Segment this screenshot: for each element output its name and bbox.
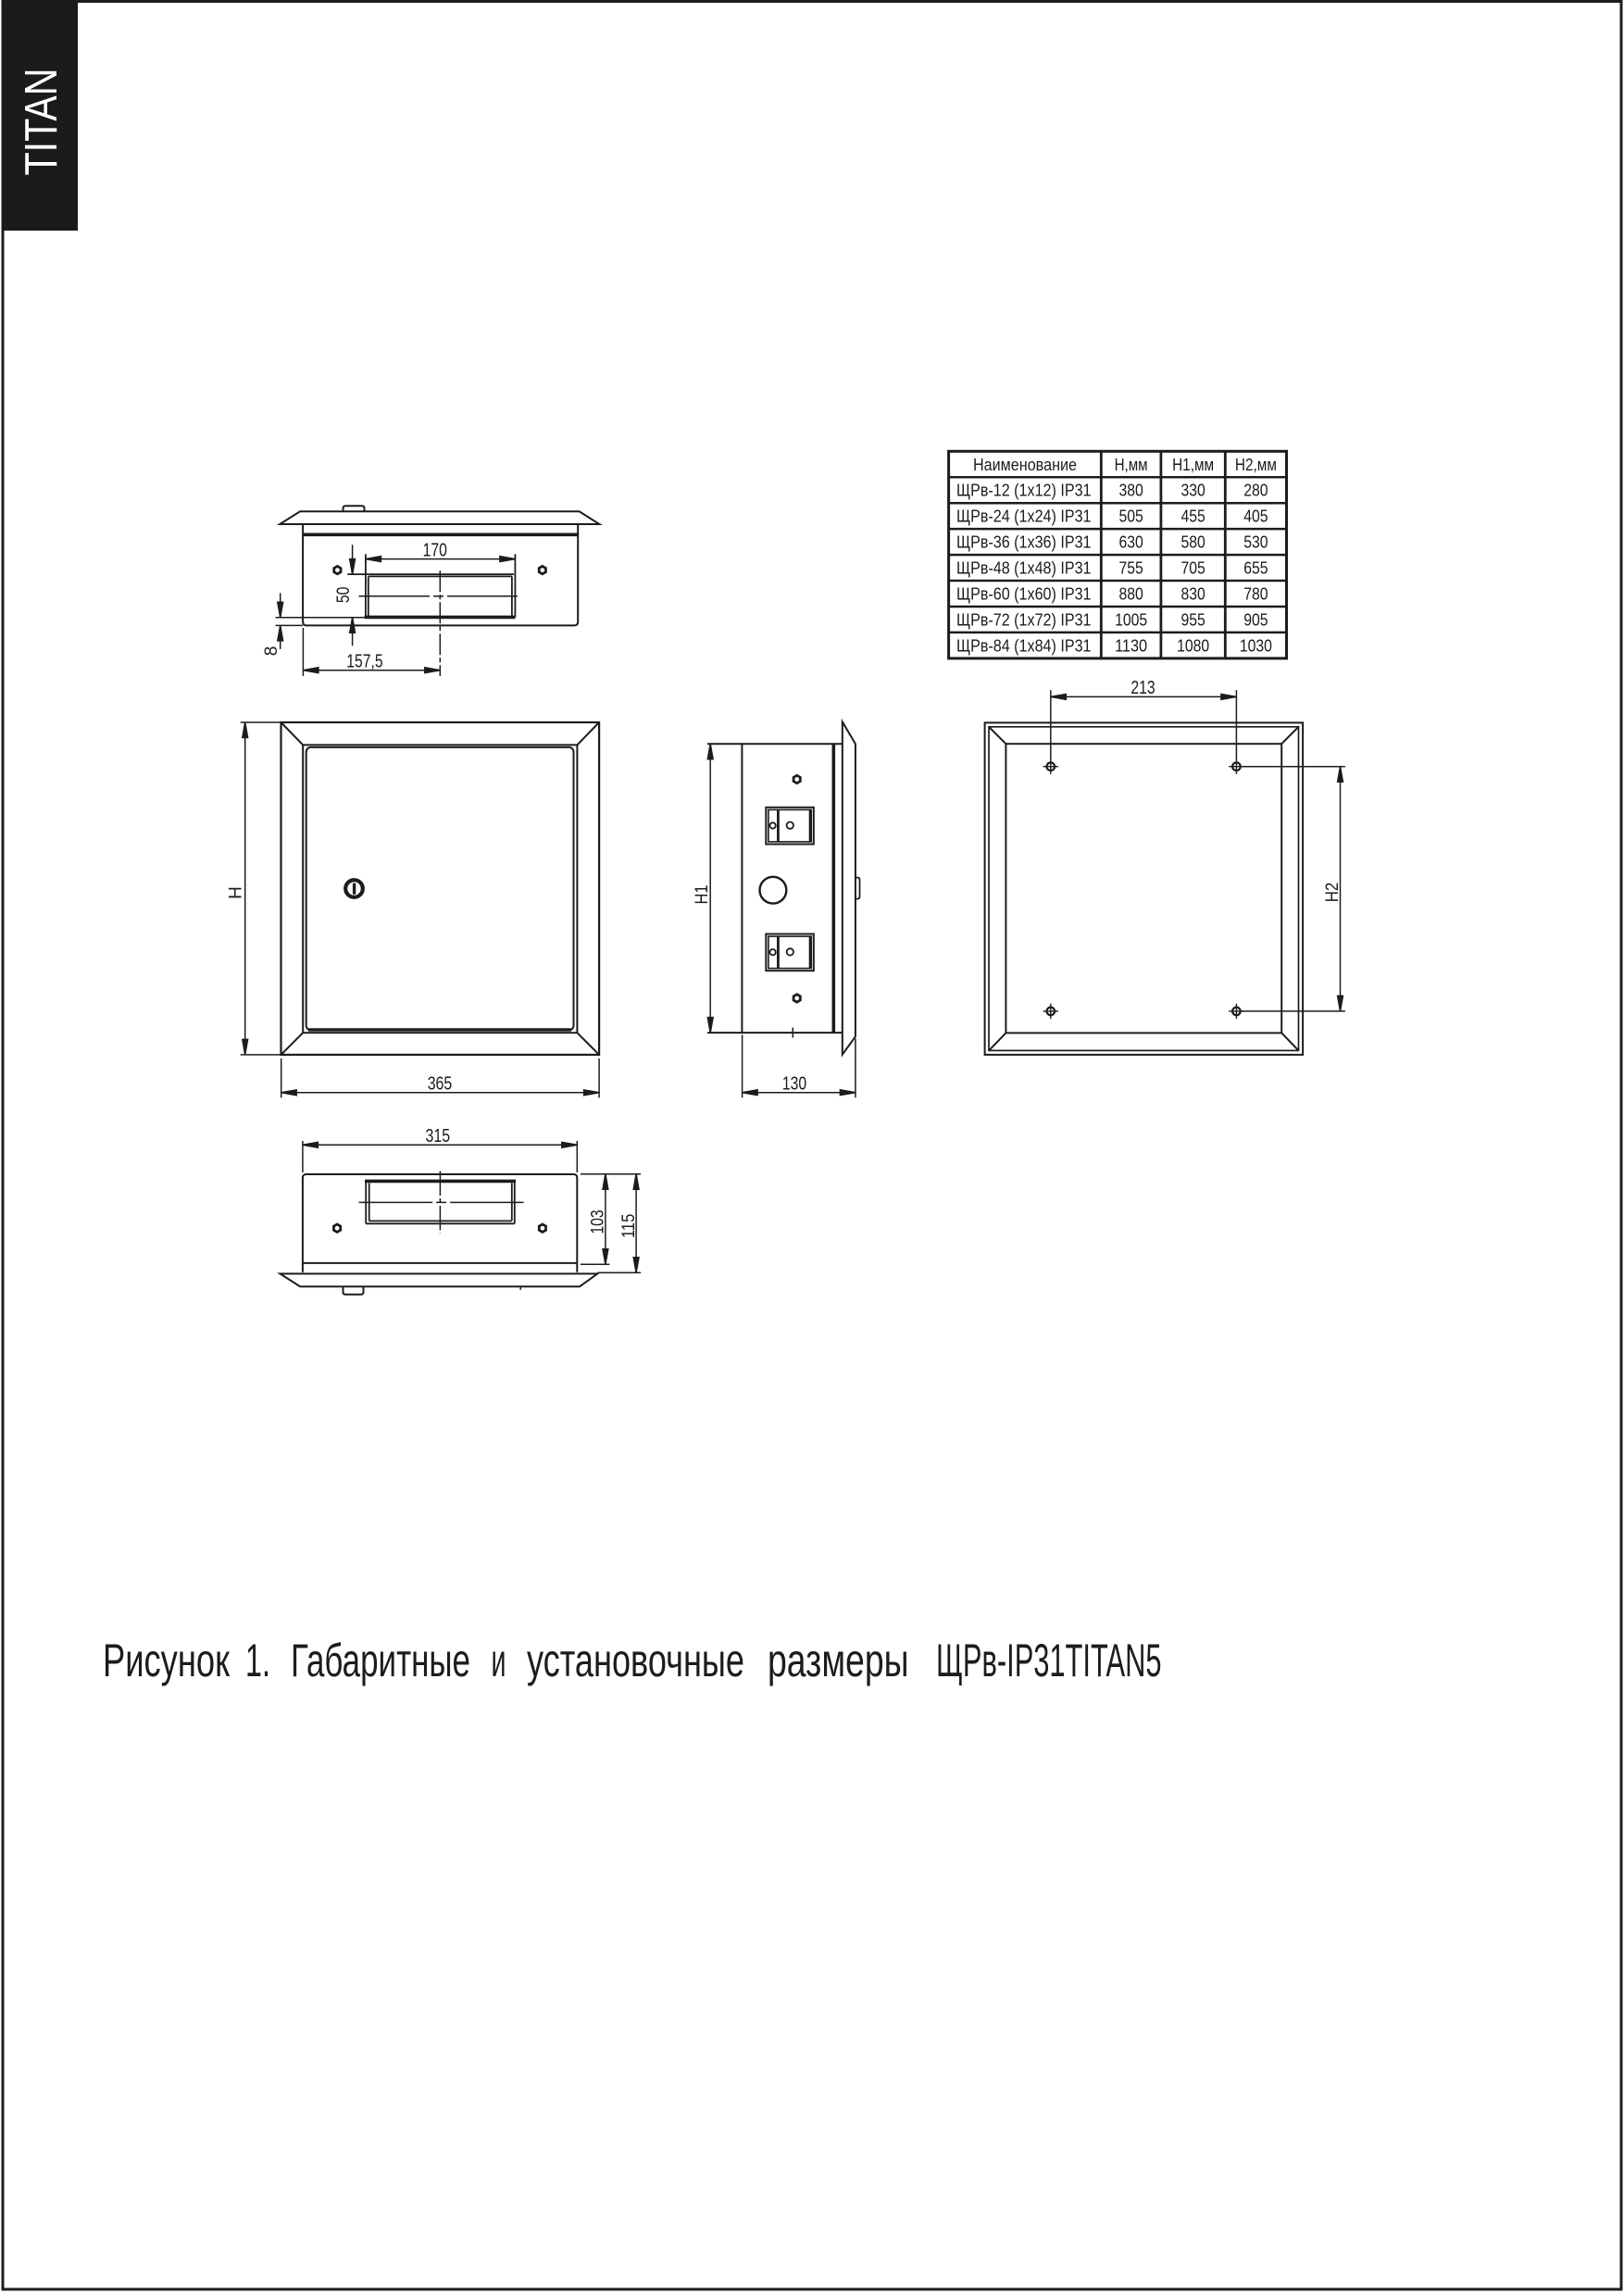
svg-text:755: 755: [1118, 559, 1143, 578]
svg-text:ЩРв-48 (1х48) IP31: ЩРв-48 (1х48) IP31: [956, 559, 1092, 578]
svg-text:TITAN: TITAN: [17, 69, 67, 176]
svg-text:405: 405: [1243, 507, 1268, 526]
svg-text:Наименование: Наименование: [973, 456, 1077, 474]
svg-text:103: 103: [588, 1209, 607, 1234]
svg-text:1080: 1080: [1177, 636, 1209, 655]
svg-text:705: 705: [1181, 559, 1205, 578]
svg-text:50: 50: [334, 587, 354, 604]
svg-text:580: 580: [1181, 533, 1205, 552]
svg-text:Рисунок1.Габаритныеиустановочн: Рисунок1.ГабаритныеиустановочныеразмерыЩ…: [103, 1635, 1162, 1686]
svg-text:530: 530: [1243, 533, 1268, 552]
svg-text:Н1,мм: Н1,мм: [1172, 456, 1214, 474]
svg-text:Н2,мм: Н2,мм: [1235, 456, 1277, 474]
svg-text:1030: 1030: [1240, 636, 1272, 655]
svg-text:780: 780: [1243, 584, 1268, 603]
svg-text:ЩРв-36 (1х36) IP31: ЩРв-36 (1х36) IP31: [956, 533, 1092, 552]
svg-text:170: 170: [423, 541, 447, 561]
svg-text:1005: 1005: [1115, 610, 1147, 629]
svg-text:330: 330: [1181, 482, 1205, 500]
svg-text:130: 130: [782, 1074, 806, 1095]
svg-text:380: 380: [1118, 482, 1143, 500]
svg-text:830: 830: [1181, 584, 1205, 603]
svg-text:315: 315: [426, 1126, 451, 1146]
svg-text:280: 280: [1243, 482, 1268, 500]
svg-text:157,5: 157,5: [346, 651, 382, 671]
svg-text:880: 880: [1118, 584, 1143, 603]
svg-text:213: 213: [1131, 678, 1155, 698]
svg-text:630: 630: [1118, 533, 1143, 552]
svg-text:H1: H1: [693, 885, 712, 905]
svg-text:ЩРв-84 (1х84) IP31: ЩРв-84 (1х84) IP31: [956, 636, 1092, 655]
svg-text:115: 115: [619, 1214, 639, 1238]
svg-text:H2: H2: [1323, 883, 1343, 903]
svg-text:505: 505: [1118, 507, 1143, 526]
svg-text:8: 8: [262, 646, 281, 657]
svg-text:H: H: [227, 886, 246, 899]
svg-text:365: 365: [428, 1074, 453, 1095]
svg-text:905: 905: [1243, 610, 1268, 629]
svg-text:1130: 1130: [1115, 636, 1147, 655]
svg-text:ЩРв-12 (1х12) IP31: ЩРв-12 (1х12) IP31: [956, 482, 1092, 500]
svg-text:Н,мм: Н,мм: [1115, 456, 1148, 474]
svg-text:655: 655: [1243, 559, 1268, 578]
svg-text:ЩРв-72 (1х72) IP31: ЩРв-72 (1х72) IP31: [956, 610, 1092, 629]
svg-text:455: 455: [1181, 507, 1205, 526]
svg-text:955: 955: [1181, 610, 1205, 629]
svg-text:ЩРв-24 (1х24) IP31: ЩРв-24 (1х24) IP31: [956, 507, 1092, 526]
svg-text:ЩРв-60 (1х60) IP31: ЩРв-60 (1х60) IP31: [956, 584, 1092, 603]
